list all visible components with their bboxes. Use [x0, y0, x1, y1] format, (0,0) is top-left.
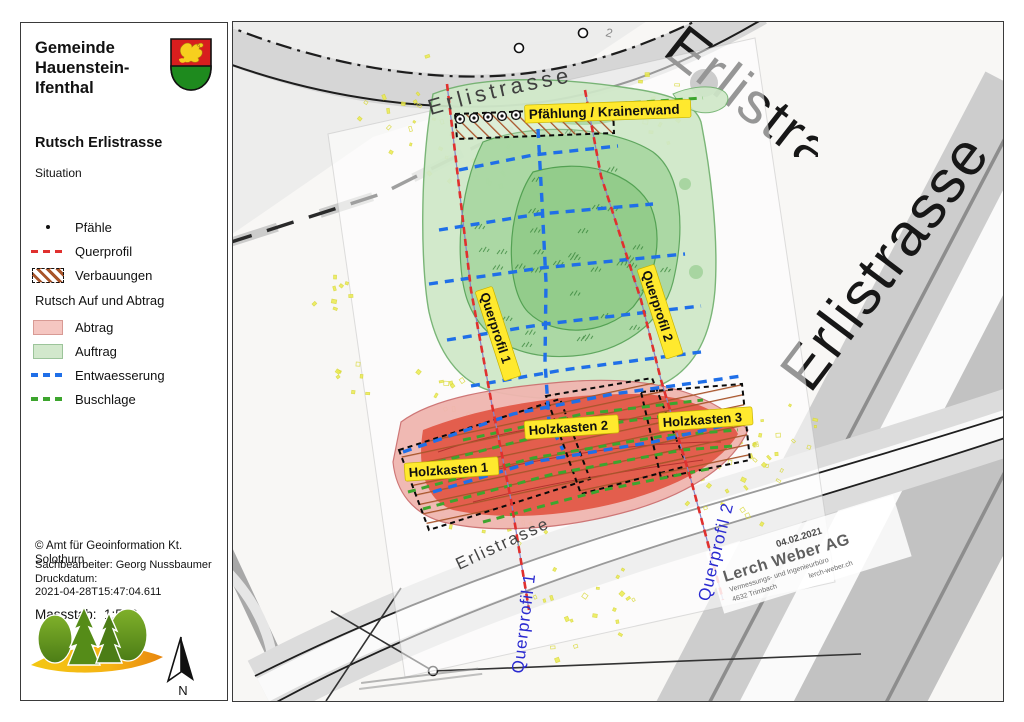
north-arrow: N — [163, 635, 199, 704]
entwaesserung-dash-icon — [31, 373, 65, 377]
querprofil-dash-icon — [31, 250, 65, 253]
title-block-panel: Gemeinde Hauenstein- Ifenthal Rutsch Erl… — [20, 22, 228, 701]
legend-item-entwaesserung: Entwaesserung — [21, 363, 227, 387]
editor-note: Sachbearbeiter: Georg Nussbaumer — [35, 559, 212, 573]
legend-group-rutsch: Rutsch Auf und Abtrag — [21, 287, 227, 315]
legend-item-pfaehle: Pfähle — [21, 215, 227, 239]
pfaehle-dot-icon — [31, 225, 65, 229]
plan-subtitle: Situation — [35, 166, 82, 180]
auftrag-fill-icon — [31, 344, 65, 359]
legend-item-abtrag: Abtrag — [21, 315, 227, 339]
north-label: N — [178, 683, 187, 698]
municipality-name: Gemeinde Hauenstein- Ifenthal — [35, 39, 129, 98]
legend-item-buschlage: Buschlage — [21, 387, 227, 411]
legend-item-auftrag: Auftrag — [21, 339, 227, 363]
forest-logo — [27, 599, 167, 690]
plan-title: Rutsch Erlistrasse — [35, 135, 162, 151]
buschlage-dash-icon — [31, 397, 65, 401]
print-date-label: Druckdatum: — [35, 573, 97, 587]
legend: Pfähle Querprofil Verbauungen Rutsch Auf… — [21, 215, 227, 411]
legend-item-querprofil: Querprofil — [21, 239, 227, 263]
verbauungen-hatch-icon — [31, 268, 65, 283]
legend-item-verbauungen: Verbauungen — [21, 263, 227, 287]
page: { "panel": { "header": { "municipality":… — [0, 0, 1024, 722]
situation-map: Erlistrasse Erlistrasse 2 — [233, 22, 1003, 701]
coat-of-arms — [169, 37, 213, 98]
abtrag-fill-icon — [31, 320, 65, 335]
map-canvas: Erlistrasse Erlistrasse 2 — [232, 21, 1004, 702]
print-date-value: 2021-04-28T15:47:04.611 — [35, 586, 161, 600]
